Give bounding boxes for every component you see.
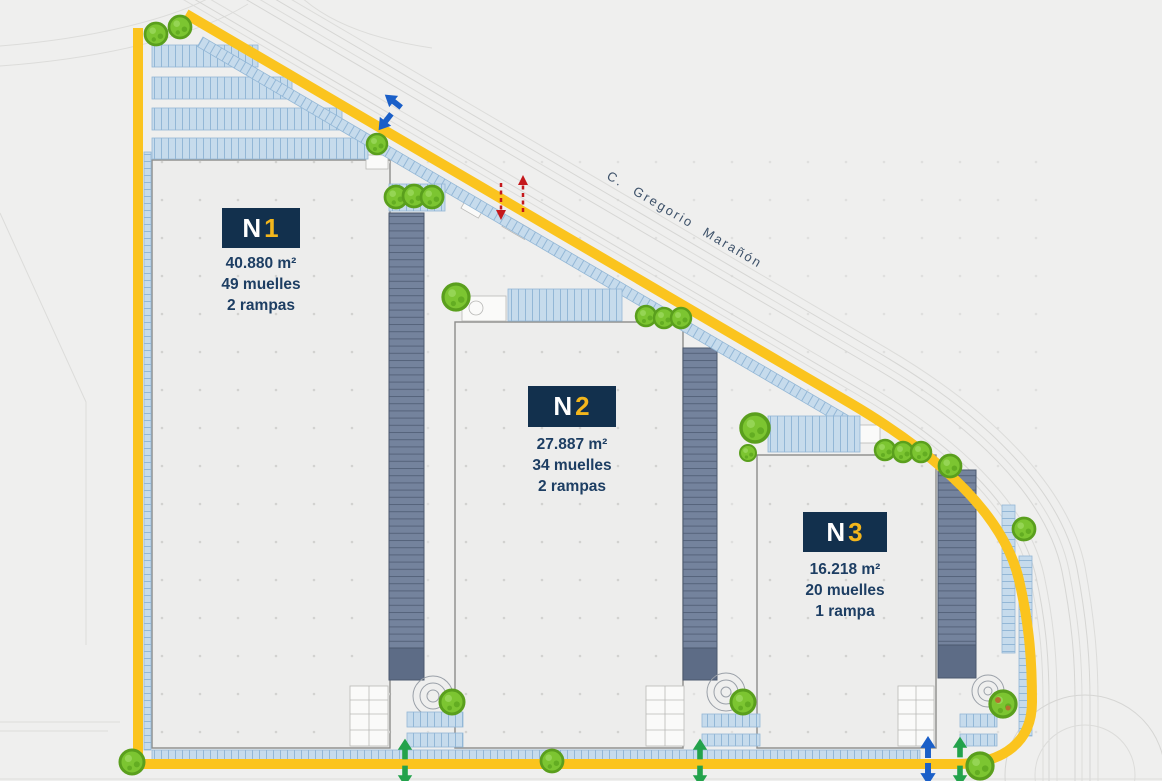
- road-curve-top-connector: [300, 0, 432, 48]
- parking-strip-n3-top: [768, 416, 860, 452]
- office-area-n1: [350, 686, 388, 746]
- building-n2-label-prefix: N: [553, 391, 573, 422]
- building-n1-label-prefix: N: [242, 213, 262, 244]
- building-n3-label-number: 3: [848, 517, 863, 548]
- parcel-boundary-line: [0, 213, 86, 645]
- tree-icon: [443, 284, 469, 310]
- building-n2-docks: 34 muelles: [492, 455, 652, 476]
- logistics-park-site-plan: C. Gregorio Marañón N1 40.880 m² 49 muel…: [0, 0, 1162, 781]
- building-n1-area: 40.880 m²: [181, 253, 341, 274]
- building-n2-stats: 27.887 m² 34 muelles 2 rampas: [492, 434, 652, 497]
- tree-icon: [911, 442, 931, 462]
- parking-strip-left: [144, 152, 151, 750]
- building-n2-area: 27.887 m²: [492, 434, 652, 455]
- building-n1-ramps: 2 rampas: [181, 295, 341, 316]
- tree-icon: [421, 186, 443, 208]
- tree-icon: [731, 690, 755, 714]
- parking-pad: [960, 734, 997, 746]
- building-n3-stats: 16.218 m² 20 muelles 1 rampa: [765, 559, 925, 622]
- parking-pad: [702, 734, 760, 746]
- dock-ramp-block-n1: [389, 648, 424, 680]
- roundabout-inner-circle: [1035, 725, 1135, 781]
- tree-icon: [367, 134, 387, 154]
- tree-icon: [440, 690, 464, 714]
- building-n1-label: N1: [222, 208, 300, 248]
- tree-icon: [741, 414, 769, 442]
- building-n3-label-prefix: N: [826, 517, 846, 548]
- dock-ramp-block-n2: [683, 648, 717, 680]
- tree-icon: [1013, 518, 1035, 540]
- tree-autumn-icon: [990, 691, 1016, 717]
- building-n3-ramps: 1 rampa: [765, 601, 925, 622]
- building-n1-label-number: 1: [264, 213, 279, 244]
- building-n2-ramps: 2 rampas: [492, 476, 652, 497]
- gate-booth: [366, 155, 388, 169]
- office-area-n2: [646, 686, 684, 746]
- parking-pad: [407, 733, 463, 747]
- office-pad-n3-top: [858, 425, 880, 443]
- dock-strip-n1: [389, 213, 424, 680]
- building-n3-label: N3: [803, 512, 887, 552]
- parking-strip-n2-top: [508, 289, 622, 321]
- parking-pad: [960, 714, 997, 727]
- tree-icon: [120, 750, 144, 774]
- tree-icon: [939, 455, 961, 477]
- tree-icon: [671, 308, 691, 328]
- building-n1-docks: 49 muelles: [181, 274, 341, 295]
- tree-icon: [740, 445, 756, 461]
- building-n1-stats: 40.880 m² 49 muelles 2 rampas: [181, 253, 341, 316]
- building-n3-docks: 20 muelles: [765, 580, 925, 601]
- tree-icon: [541, 750, 563, 772]
- building-n2-label-number: 2: [575, 391, 590, 422]
- dock-strip-n2: [683, 348, 717, 680]
- building-n1: [152, 160, 390, 748]
- tree-icon: [967, 753, 993, 779]
- parking-pad: [702, 714, 760, 727]
- tree-icon: [169, 16, 191, 38]
- tree-icon: [145, 23, 167, 45]
- parking-row: [152, 138, 368, 159]
- building-n3-area: 16.218 m²: [765, 559, 925, 580]
- building-n2-label: N2: [528, 386, 616, 427]
- dock-ramp-block-n3: [938, 645, 976, 678]
